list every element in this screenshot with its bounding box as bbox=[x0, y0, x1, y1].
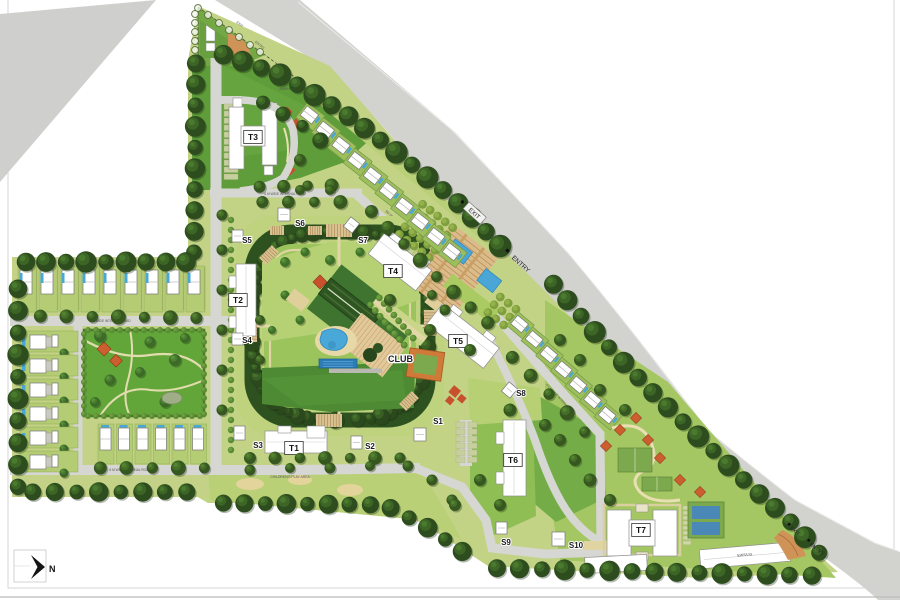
svg-text:T2: T2 bbox=[233, 295, 243, 305]
svg-text:T5: T5 bbox=[453, 336, 463, 346]
svg-text:N: N bbox=[49, 564, 56, 574]
svg-text:S10: S10 bbox=[569, 541, 584, 550]
svg-text:S5: S5 bbox=[242, 236, 252, 245]
svg-text:S2: S2 bbox=[365, 442, 375, 451]
svg-text:T1: T1 bbox=[289, 443, 299, 453]
svg-text:S8: S8 bbox=[516, 389, 526, 398]
svg-text:T7: T7 bbox=[636, 525, 646, 535]
svg-text:S4: S4 bbox=[242, 336, 252, 345]
svg-text:S1: S1 bbox=[433, 417, 443, 426]
svg-text:T3: T3 bbox=[248, 132, 258, 142]
svg-text:S7: S7 bbox=[358, 236, 368, 245]
svg-text:S9: S9 bbox=[501, 538, 511, 547]
svg-text:S6: S6 bbox=[295, 219, 305, 228]
svg-text:CLUB: CLUB bbox=[388, 354, 413, 364]
svg-text:T6: T6 bbox=[508, 455, 518, 465]
svg-text:S3: S3 bbox=[253, 441, 263, 450]
svg-text:T4: T4 bbox=[388, 266, 398, 276]
svg-text:CHILDREN'S PLAY AREA: CHILDREN'S PLAY AREA bbox=[270, 475, 310, 479]
